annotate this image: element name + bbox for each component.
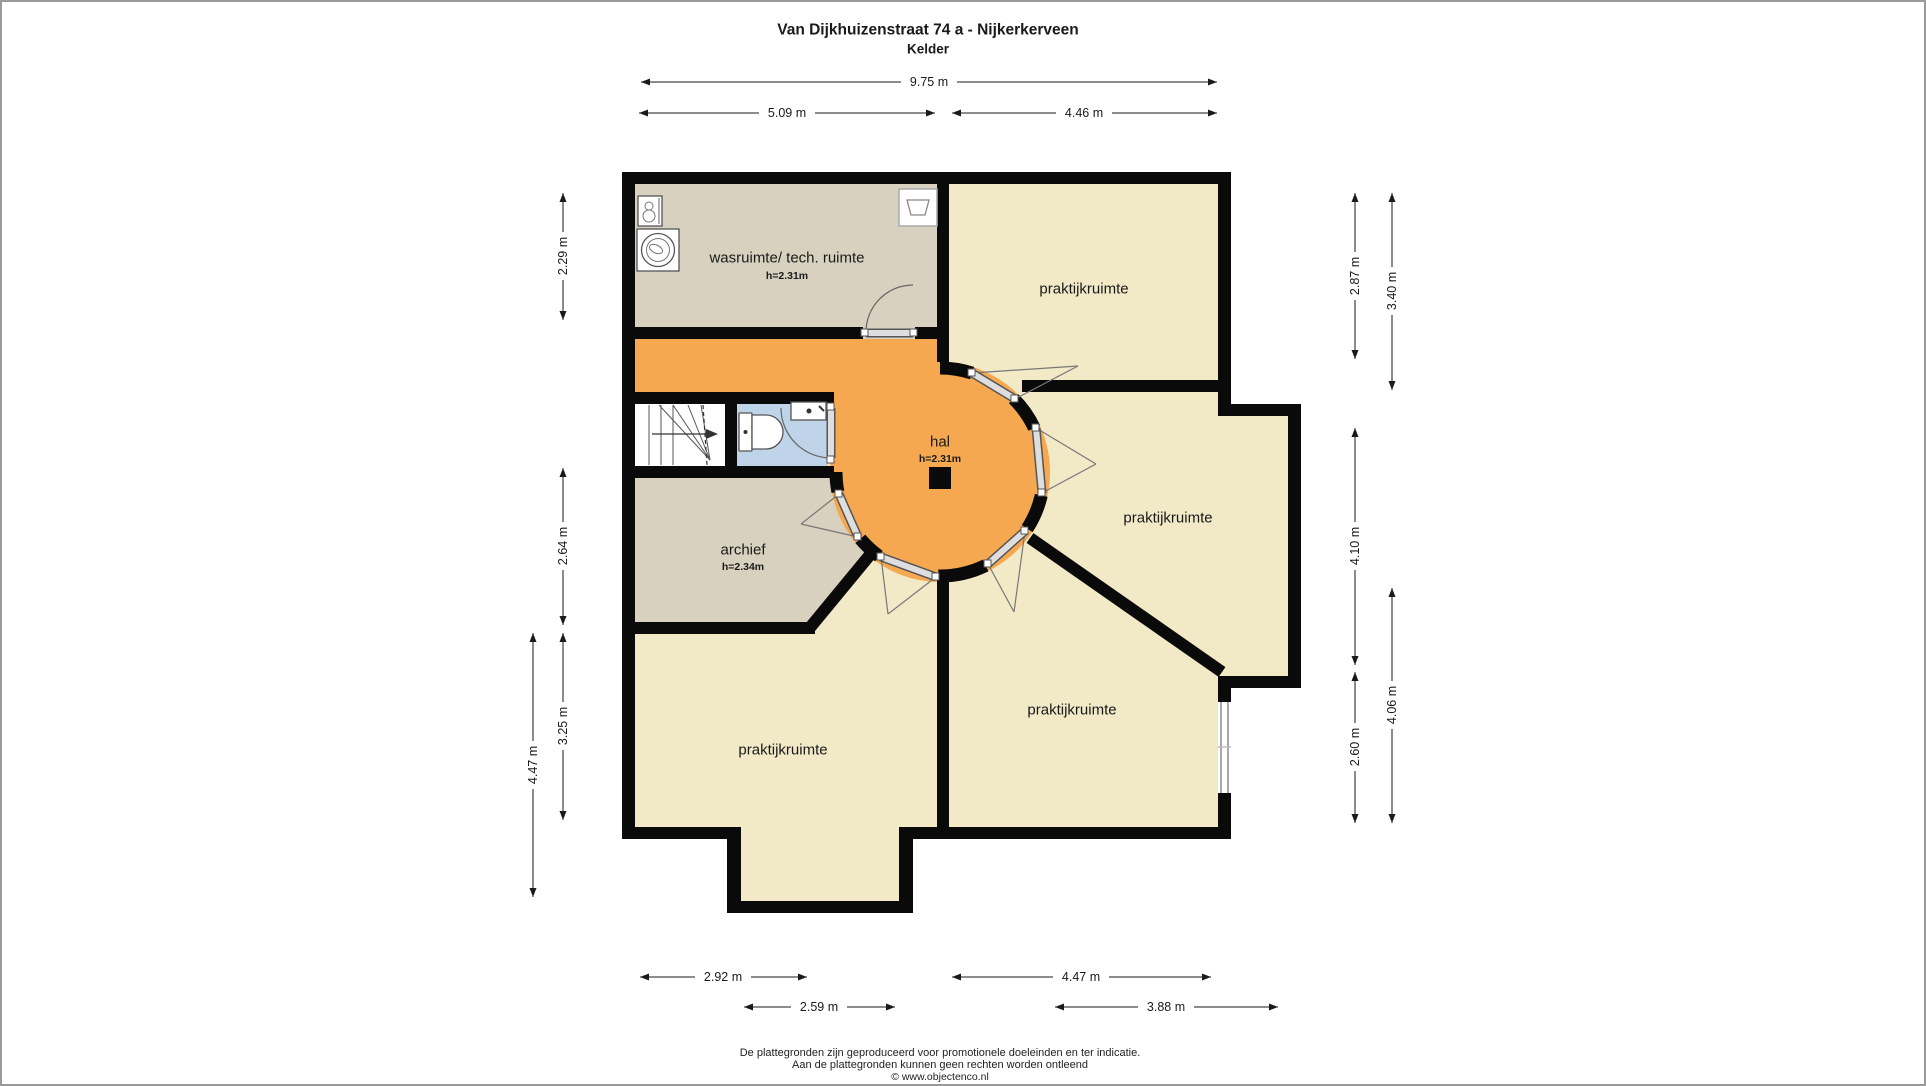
- wall-protrusion-right: [899, 827, 913, 913]
- floorplan-page: wasruimte/ tech. ruimte h=2.31m praktijk…: [0, 0, 1926, 1086]
- dim-label: 3.88 m: [1147, 1000, 1185, 1014]
- hand-basin-icon: [791, 402, 826, 420]
- washing-machine-icon: [637, 229, 679, 271]
- wall-protrusion-left: [727, 827, 741, 913]
- dimension-top-right: 4.46 m: [952, 105, 1217, 121]
- footer-disclaimer-line2: Aan de plattegronden kunnen geen rechten…: [792, 1059, 1088, 1071]
- dimension-bottom-right-inner: 3.88 m: [1055, 999, 1278, 1015]
- dim-label: 4.47 m: [1062, 970, 1100, 984]
- wall-protrusion-bottom: [727, 901, 913, 913]
- dimension-right-bm-inner: 2.60 m: [1346, 672, 1364, 823]
- page-title: Van Dijkhuizenstraat 74 a - Nijkerkervee…: [777, 22, 1079, 39]
- footer-disclaimer-line1: De plattegronden zijn geproduceerd voor …: [740, 1047, 1141, 1059]
- wall-wasruimte-bottom-a: [622, 327, 863, 339]
- boiler-icon: [638, 196, 662, 226]
- room-label-archief: archief: [720, 542, 766, 559]
- dim-label: 3.25 m: [556, 707, 570, 745]
- wall-archief-top: [622, 466, 834, 478]
- wall-praktijk-tr-bottom: [1022, 380, 1231, 392]
- floorplan-drawing: wasruimte/ tech. ruimte h=2.31m praktijk…: [0, 0, 1926, 1086]
- room-label-praktijkruimte-bottom-middle: praktijkruimte: [1027, 702, 1116, 719]
- room-label-wasruimte: wasruimte/ tech. ruimte: [708, 250, 864, 267]
- dim-label: 2.64 m: [556, 527, 570, 565]
- dim-label: 2.92 m: [704, 970, 742, 984]
- dim-label: 4.06 m: [1385, 686, 1399, 724]
- dim-label: 3.40 m: [1385, 272, 1399, 310]
- room-height-wasruimte: h=2.31m: [766, 270, 808, 282]
- dim-label: 2.29 m: [556, 237, 570, 275]
- wall-left: [622, 172, 635, 839]
- dimension-left-archief: 2.64 m: [554, 468, 572, 625]
- dimension-top-left: 5.09 m: [639, 105, 935, 121]
- dimension-bottom-right-outer: 4.47 m: [952, 969, 1211, 985]
- dim-label: 4.10 m: [1348, 527, 1362, 565]
- dimension-bottom-left-outer: 2.92 m: [640, 969, 807, 985]
- room-label-hal: hal: [930, 434, 950, 451]
- floorplan: wasruimte/ tech. ruimte h=2.31m praktijk…: [622, 172, 1301, 913]
- window: [1218, 702, 1231, 793]
- wall-right-lower-a: [1218, 676, 1231, 702]
- wall-bottom-right-seg: [899, 827, 1231, 839]
- wall-central-divider: [937, 578, 949, 827]
- wall-stairs-toilet-divider: [725, 404, 737, 466]
- wall-right-upper: [1218, 172, 1231, 416]
- dim-label: 5.09 m: [768, 106, 806, 120]
- dim-label: 2.59 m: [800, 1000, 838, 1014]
- wall-bottom-left-seg: [622, 827, 741, 839]
- room-label-praktijkruimte-middle-right: praktijkruimte: [1123, 510, 1212, 527]
- dim-label: 4.46 m: [1065, 106, 1103, 120]
- dimension-bottom-protrusion: 2.59 m: [744, 999, 895, 1015]
- room-label-praktijkruimte-top-right: praktijkruimte: [1039, 281, 1128, 298]
- wall-archief-bottom: [622, 622, 815, 634]
- wall-top: [622, 172, 1231, 184]
- dimension-right-bm-outer: 4.06 m: [1383, 588, 1401, 823]
- page-subtitle: Kelder: [907, 42, 950, 57]
- dimension-right-mr: 4.10 m: [1346, 428, 1364, 665]
- dimension-left-praktijk-outer: 4.47 m: [524, 633, 542, 897]
- dimension-right-tr-outer: 3.40 m: [1383, 193, 1401, 390]
- footer: De plattegronden zijn geproduceerd voor …: [740, 1047, 1141, 1083]
- dimension-right-tr-inner: 2.87 m: [1346, 193, 1364, 359]
- dim-label: 2.60 m: [1348, 728, 1362, 766]
- footer-copyright: © www.objectenco.nl: [891, 1071, 989, 1083]
- dimension-left-praktijk-inner: 3.25 m: [554, 633, 572, 820]
- dimension-left-wasruimte: 2.29 m: [554, 193, 572, 320]
- wall-wasruimte-divider: [937, 172, 949, 362]
- room-height-hal: h=2.31m: [919, 453, 961, 465]
- room-height-archief: h=2.34m: [722, 561, 764, 573]
- laundry-sink-icon: [899, 189, 937, 226]
- dimension-top-total: 9.75 m: [641, 74, 1217, 90]
- dim-label: 2.87 m: [1348, 257, 1362, 295]
- wall-bump-right: [1288, 404, 1301, 688]
- toilet-icon: [739, 413, 783, 451]
- dim-label: 9.75 m: [910, 75, 948, 89]
- column: [929, 467, 951, 489]
- room-label-praktijkruimte-bottom-left: praktijkruimte: [738, 742, 827, 759]
- dim-label: 4.47 m: [526, 746, 540, 784]
- header: Van Dijkhuizenstraat 74 a - Nijkerkervee…: [777, 22, 1079, 57]
